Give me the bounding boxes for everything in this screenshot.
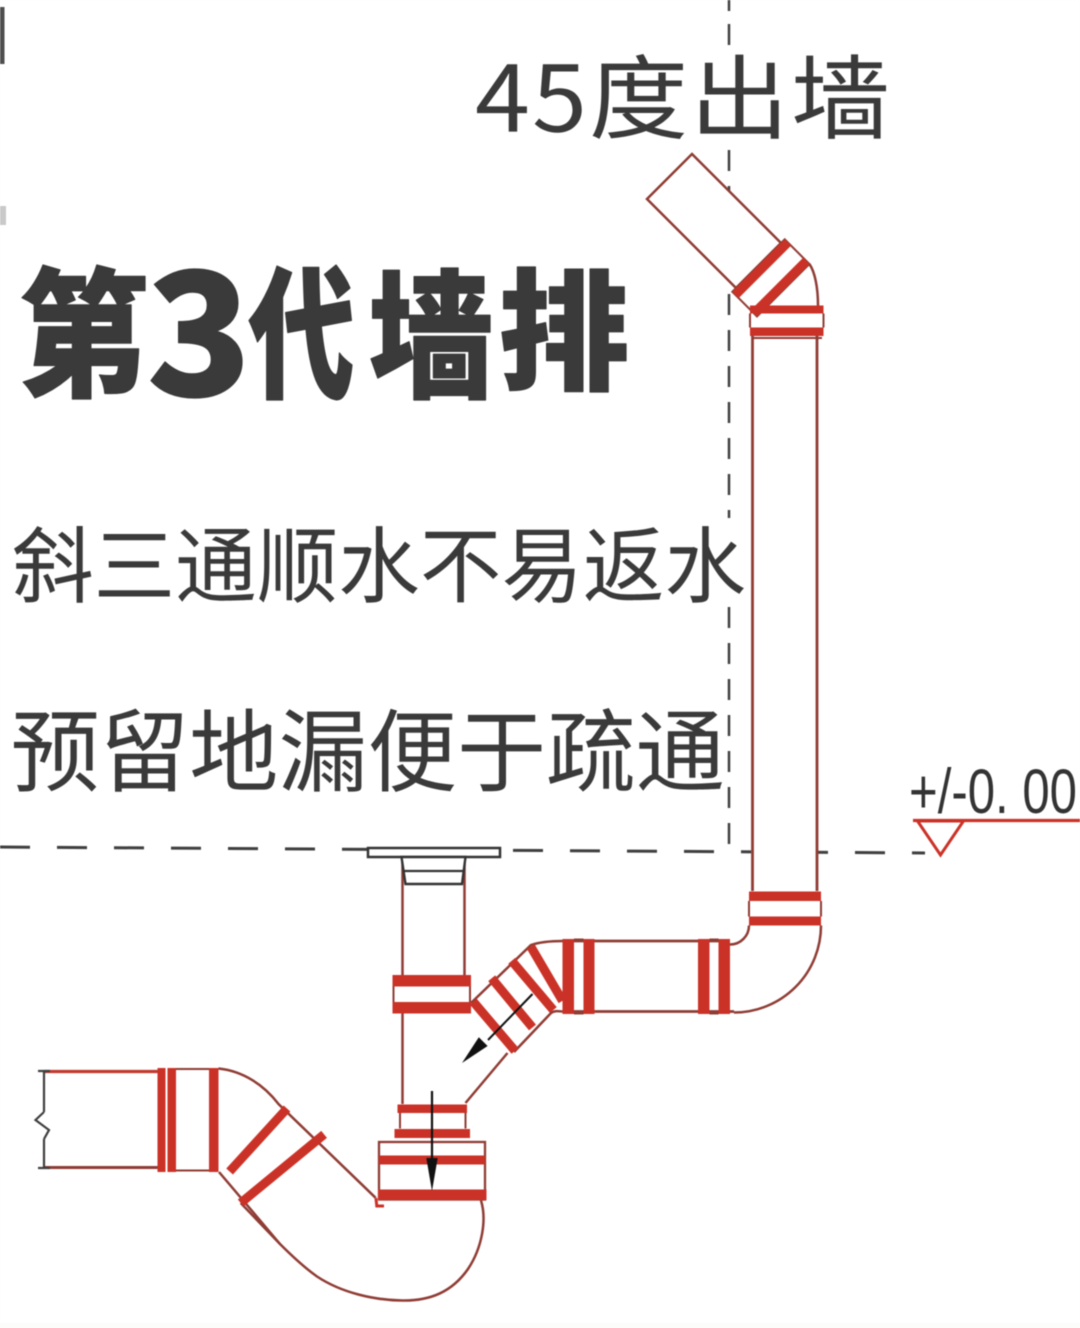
svg-text:+/-0. 00: +/-0. 00 (909, 756, 1077, 826)
